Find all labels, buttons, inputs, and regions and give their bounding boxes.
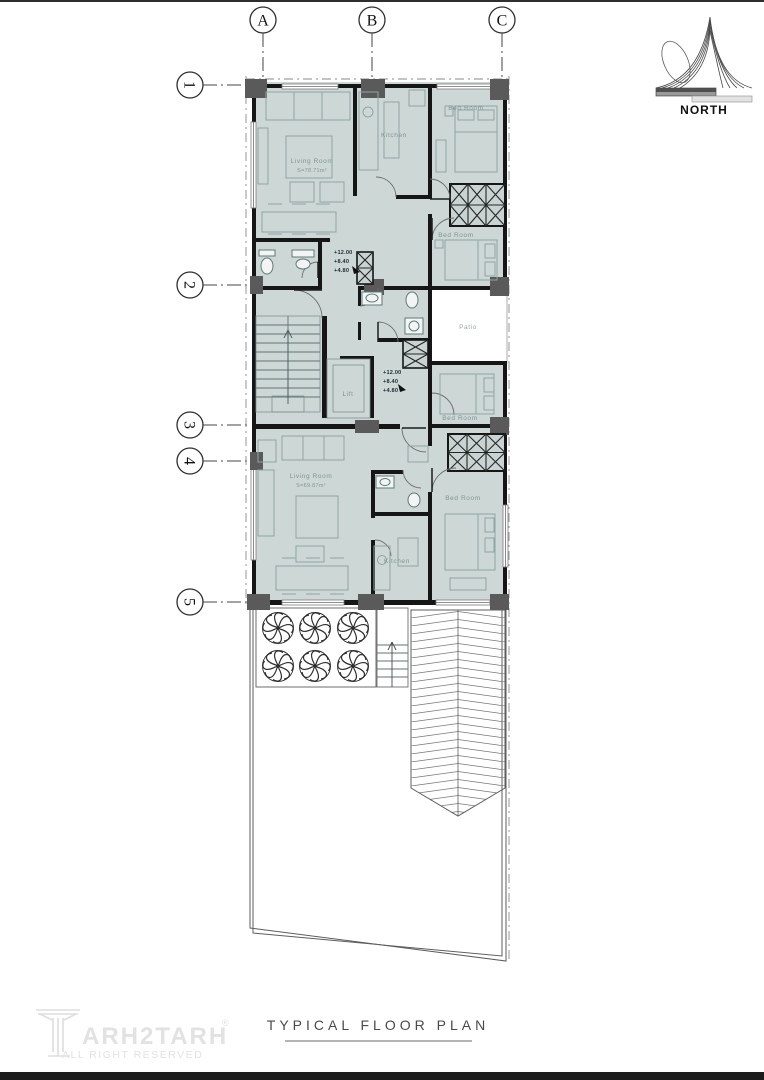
floor-plan-sheet: A B C 1 2 3 4 [0,0,764,1080]
closet-upper [450,184,505,226]
north-indicator: NORTH [656,17,752,117]
sheet-bottom-bar [0,1072,764,1080]
level-value: +8.40 [334,259,349,265]
grid-row-1: 1 [177,72,250,98]
building-plan: Living Room S=78.71m² Kitchen Bed Room B… [245,76,509,963]
title-block: TYPICAL FLOOR PLAN [267,1017,489,1041]
grid-row-label: 2 [181,281,198,289]
tree-icon [298,649,333,684]
grid-row-label: 5 [181,598,198,606]
column [355,420,379,433]
room-label-lift: Lift [342,391,353,398]
yard-stair [377,608,408,687]
window [503,505,508,567]
ramp [411,610,505,816]
grid-row-4: 4 [177,448,250,474]
room-area-living-lower: S=69.87m² [296,483,326,489]
logo-tagline: ALL RIGHT RESERVED [62,1049,203,1061]
grid-row-5: 5 [177,589,250,615]
room-label-bed1-upper: Bed Room [448,105,484,112]
room-label-living-lower: Living Room [290,473,333,480]
column [245,79,267,98]
logo-brand: ARH2TARH [82,1023,228,1050]
level-value: +12.00 [334,250,352,256]
window [436,600,490,605]
window [437,84,491,89]
grid-col-label: B [367,13,378,30]
room-area-living-upper: S=78.71m² [297,168,327,174]
room-label-kitchen-upper: Kitchen [381,132,407,139]
window [251,122,256,208]
level-value: +4.80 [383,388,398,394]
grid-col-a: A [250,7,276,84]
grid-row-3: 3 [177,412,250,438]
sink [380,479,390,486]
registered-mark-icon: ® [222,1018,229,1028]
column [490,79,509,100]
logo: ARH2TARH ® ALL RIGHT RESERVED [36,1010,229,1061]
grid-col-b: B [359,7,385,84]
grid-row-2: 2 [177,272,250,298]
tree-icon [298,611,333,646]
window [251,468,256,560]
washer-door [409,321,419,331]
column [250,276,263,294]
sheet-top-edge [0,0,764,2]
toilet-tank [259,250,275,256]
level-value: +8.40 [383,379,398,385]
grid-col-label: A [257,13,269,30]
room-label-bed2-lower: Bed Room [445,495,481,502]
shaft-core [403,340,428,368]
sheet-title: TYPICAL FLOOR PLAN [267,1017,489,1033]
level-value: +4.80 [334,268,349,274]
room-label-kitchen-lower: Kitchen [384,558,410,565]
level-value: +12.00 [383,370,401,376]
column [490,417,509,435]
shaft-upper [357,252,373,284]
yard [250,607,506,961]
grid-col-label: C [497,13,508,30]
grid-row-label: 1 [181,81,198,89]
north-label: NORTH [680,103,728,117]
grid-row-label: 3 [181,421,198,429]
room-label-patio: Patio [459,324,477,331]
tree-icon [261,649,296,684]
window [282,600,344,605]
toilet [261,258,273,274]
room-label-bed2-upper: Bed Room [438,232,474,239]
tree-icon [261,611,296,646]
sink [296,259,310,269]
column [361,79,385,98]
window [282,84,338,89]
north-arrow-icon [656,17,752,102]
tree-icon [336,649,371,684]
vanity [292,250,314,257]
sink [366,294,378,302]
grid-row-label: 4 [181,457,198,465]
room-label-bed1-lower: Bed Room [442,415,478,422]
room-label-living-upper: Living Room [291,158,334,165]
toilet [408,493,420,507]
floor-plan-drawing: A B C 1 2 3 4 [0,0,764,1080]
grid-col-c: C [489,7,515,84]
toilet [406,292,418,308]
tree-icon [336,611,371,646]
stair-direction-arrow [388,642,396,687]
column [250,452,263,470]
closet-lower [448,434,505,471]
